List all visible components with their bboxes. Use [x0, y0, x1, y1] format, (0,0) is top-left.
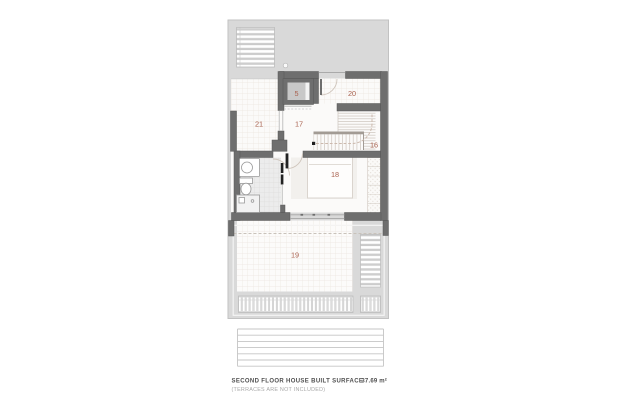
room-label-18: 18 [331, 170, 339, 179]
surface-note: (TERRACES ARE NOT INCLUDED) [232, 387, 326, 393]
room-label-21: 21 [255, 120, 263, 129]
wall-top-left [280, 72, 319, 79]
wall-stub-right [383, 221, 388, 236]
stairs-start-marker [312, 142, 315, 145]
wall-bath-inner [281, 205, 286, 213]
room-label-19: 19 [291, 251, 299, 260]
room-label-20: 20 [348, 89, 356, 98]
window-tick [301, 214, 304, 216]
terrace-louver-panel [361, 235, 381, 288]
shower-drain [239, 198, 245, 204]
terrace-19 [229, 221, 389, 316]
surface-area-value: 37.69 m² [361, 378, 387, 385]
surface-title: SECOND FLOOR HOUSE BUILT SURFACE [232, 379, 364, 385]
wall-bathroom-top [237, 151, 274, 158]
roof-louver-panel [237, 28, 275, 68]
window-tick [328, 214, 331, 216]
roof-vent-circle [283, 63, 288, 68]
shower-head [251, 200, 254, 203]
door-leaf-bath-1 [281, 163, 284, 173]
floor-plan-canvas: 5 20 21 17 16 18 19 SECOND FLOOR HOUSE B… [0, 0, 620, 406]
wall-right [381, 72, 388, 221]
window-tick [313, 214, 316, 216]
wall-top-right [346, 72, 382, 79]
wall-stub-left [229, 221, 235, 237]
stairs-stringer [314, 132, 364, 135]
room-label-17: 17 [295, 120, 303, 129]
terrace-railing-right [361, 296, 381, 313]
wall-bedroom-top [303, 151, 381, 158]
door-leaf-bedroom-18 [286, 153, 289, 168]
door-leaf-bath-2 [281, 175, 284, 185]
room-label-16: 16 [370, 141, 378, 150]
terrace-railing-main [239, 296, 354, 313]
stairs-lower-flight [314, 134, 364, 150]
toilet [240, 178, 253, 195]
room-label-5: 5 [294, 89, 298, 98]
floor-plan-page: 5 20 21 17 16 18 19 SECOND FLOOR HOUSE B… [0, 0, 620, 406]
wall-left-upper [231, 111, 237, 151]
wardrobe [368, 158, 381, 214]
wall-17-21-lower [278, 131, 284, 140]
wall-corner-block [272, 140, 287, 151]
wall-bottom-right [345, 213, 382, 221]
wall-bottom-left [232, 213, 291, 221]
wall-under-terrace-20 [337, 104, 381, 112]
stairs-upper-flight [338, 111, 376, 132]
shower [237, 195, 260, 213]
bathroom-sink [240, 159, 260, 177]
